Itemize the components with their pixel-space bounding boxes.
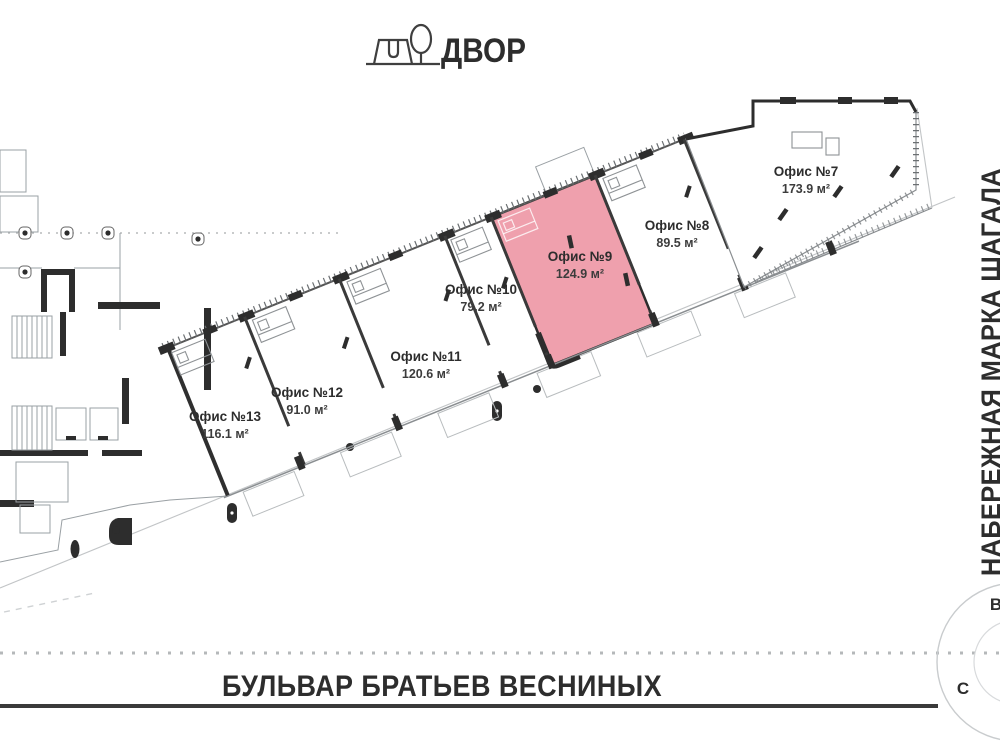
svg-text:124.9 м²: 124.9 м² <box>556 267 604 281</box>
playground-icon <box>366 25 440 64</box>
stairs <box>12 316 52 450</box>
svg-text:Офис №11: Офис №11 <box>390 349 462 364</box>
yard-label: ДВОР <box>441 32 526 70</box>
svg-text:Офис №13: Офис №13 <box>189 409 261 424</box>
compass-north: С <box>957 679 969 698</box>
svg-text:Офис №10: Офис №10 <box>445 282 517 297</box>
svg-text:Офис №7: Офис №7 <box>774 164 838 179</box>
yard-header: ДВОР <box>366 25 526 70</box>
svg-text:91.0 м²: 91.0 м² <box>286 403 327 417</box>
floor-plan-page: Офис №7 173.9 м² Офис №8 89.5 м² Офис №9… <box>0 0 1000 750</box>
street-right-vertical: НАБЕРЕЖНАЯ МАРКА ШАГАЛА <box>976 168 1000 576</box>
street-bottom: БУЛЬВАР БРАТЬЕВ ВЕСНИНЫХ <box>222 670 662 703</box>
floor-plan-canvas: Офис №7 173.9 м² Офис №8 89.5 м² Офис №9… <box>0 0 1000 750</box>
svg-text:89.5 м²: 89.5 м² <box>656 236 697 250</box>
svg-text:Офис №8: Офис №8 <box>645 218 710 233</box>
compass-east: В <box>990 595 1000 614</box>
svg-text:116.1 м²: 116.1 м² <box>201 427 248 441</box>
svg-text:120.6 м²: 120.6 м² <box>402 367 450 381</box>
svg-text:173.9 м²: 173.9 м² <box>782 182 830 196</box>
svg-text:Офис №9: Офис №9 <box>548 249 612 264</box>
svg-text:Офис №12: Офис №12 <box>271 385 343 400</box>
svg-text:79.2 м²: 79.2 м² <box>460 300 501 314</box>
compass: С В <box>937 583 1000 741</box>
